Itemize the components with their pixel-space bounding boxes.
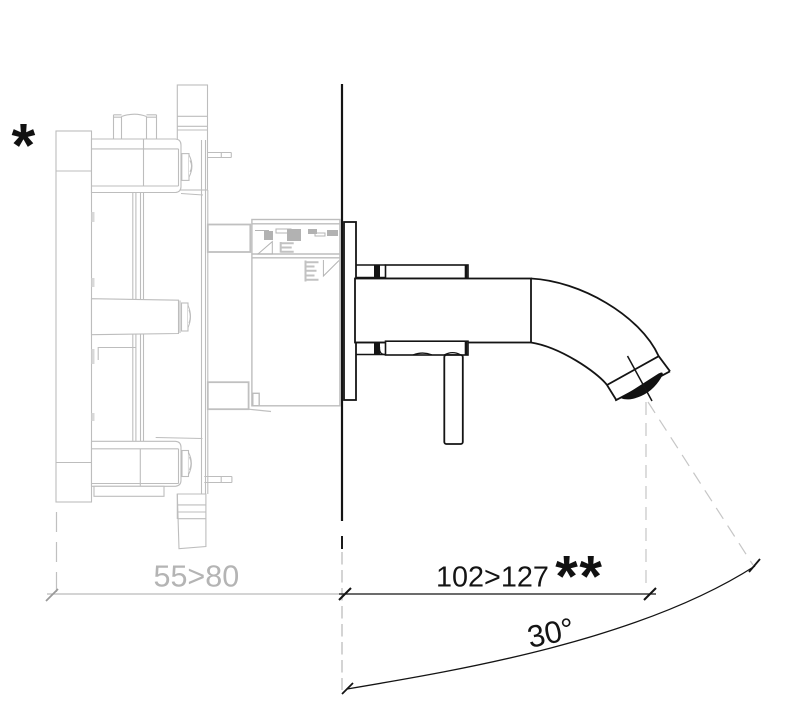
svg-text:102>127: 102>127: [436, 562, 549, 594]
svg-text:55>80: 55>80: [154, 560, 240, 594]
svg-text:*: *: [12, 111, 36, 179]
svg-text:*: *: [555, 545, 578, 610]
svg-text:*: *: [579, 545, 602, 610]
